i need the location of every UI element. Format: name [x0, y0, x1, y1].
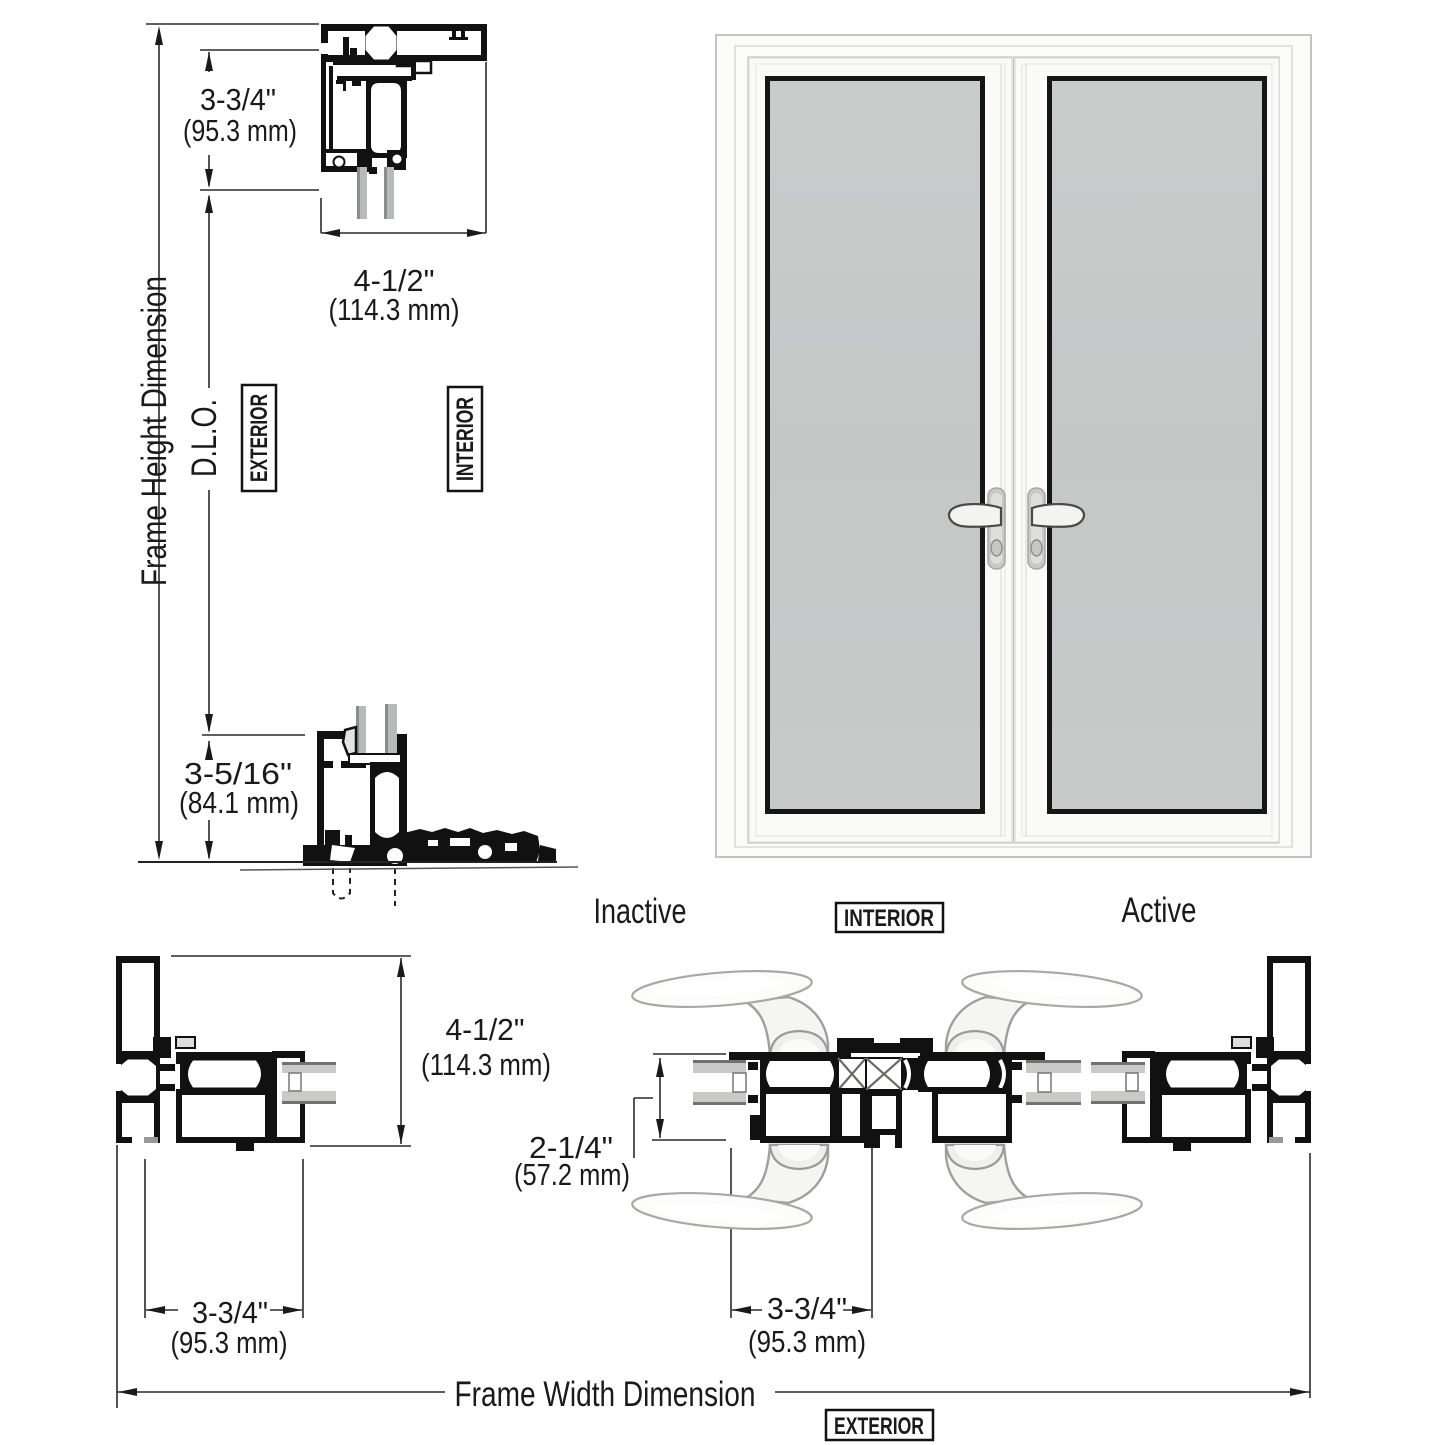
- svg-text:EXTERIOR: EXTERIOR: [246, 394, 273, 482]
- svg-text:INTERIOR: INTERIOR: [452, 397, 479, 481]
- svg-text:INTERIOR: INTERIOR: [844, 905, 934, 932]
- svg-text:Active: Active: [1122, 891, 1197, 930]
- svg-text:Frame Width Dimension: Frame Width Dimension: [455, 1375, 756, 1414]
- svg-text:(114.3 mm): (114.3 mm): [421, 1047, 551, 1082]
- svg-text:(114.3 mm): (114.3 mm): [329, 292, 460, 327]
- svg-text:(95.3 mm): (95.3 mm): [171, 1325, 288, 1360]
- svg-text:3-3/4": 3-3/4": [767, 1291, 847, 1326]
- svg-text:(84.1 mm): (84.1 mm): [179, 785, 299, 820]
- svg-text:4-1/2": 4-1/2": [446, 1012, 525, 1047]
- svg-text:Inactive: Inactive: [594, 892, 687, 931]
- svg-text:3-3/4": 3-3/4": [200, 82, 276, 117]
- svg-text:(95.3 mm): (95.3 mm): [748, 1324, 866, 1359]
- svg-text:EXTERIOR: EXTERIOR: [834, 1413, 924, 1440]
- svg-text:(57.2 mm): (57.2 mm): [514, 1157, 630, 1192]
- svg-text:Frame Height Dimension: Frame Height Dimension: [135, 276, 174, 586]
- svg-text:(95.3 mm): (95.3 mm): [183, 113, 297, 148]
- svg-text:D.L.O.: D.L.O.: [185, 399, 224, 477]
